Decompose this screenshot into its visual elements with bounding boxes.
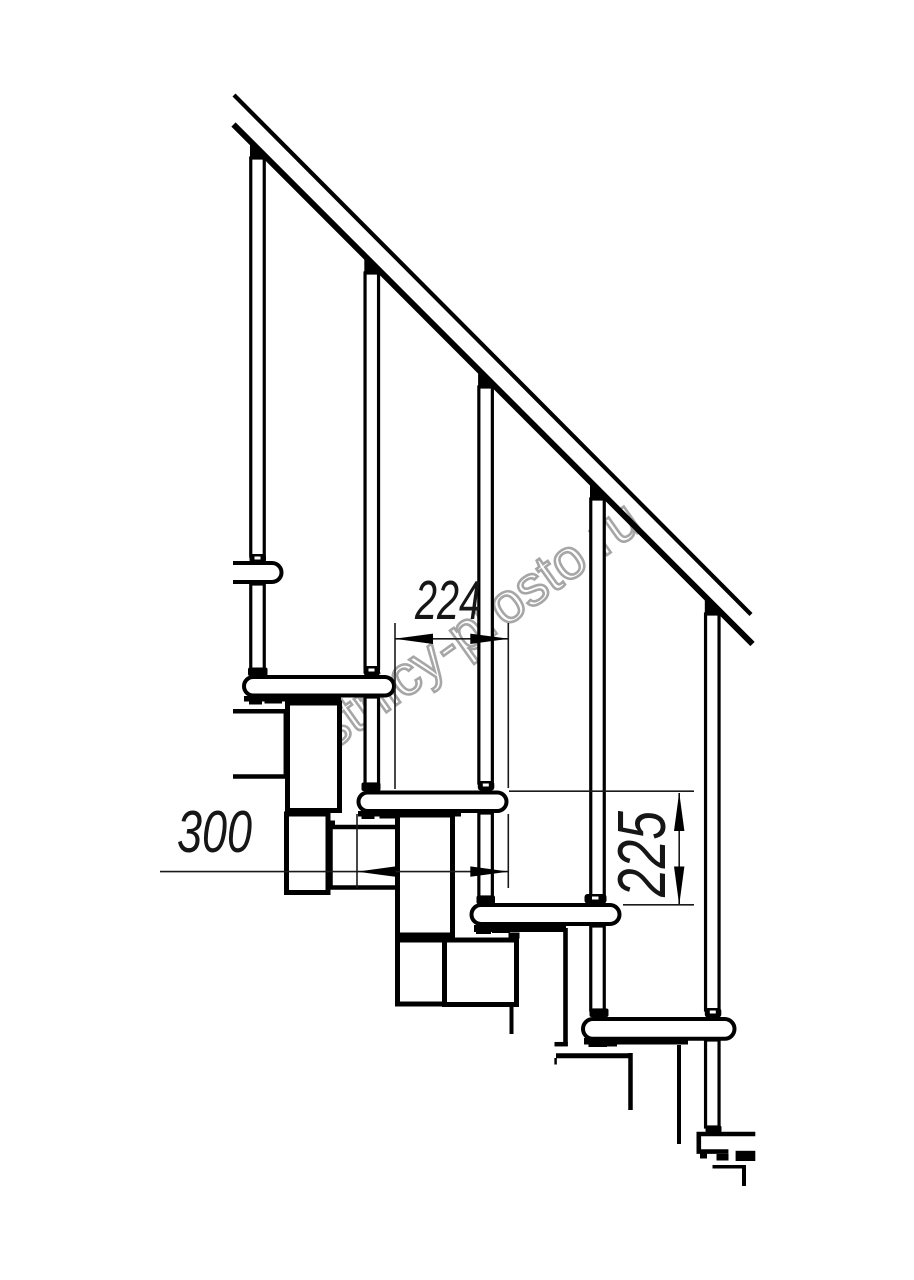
svg-text:300: 300: [177, 799, 252, 865]
svg-text:225: 225: [604, 811, 680, 898]
svg-text:224: 224: [414, 569, 481, 631]
